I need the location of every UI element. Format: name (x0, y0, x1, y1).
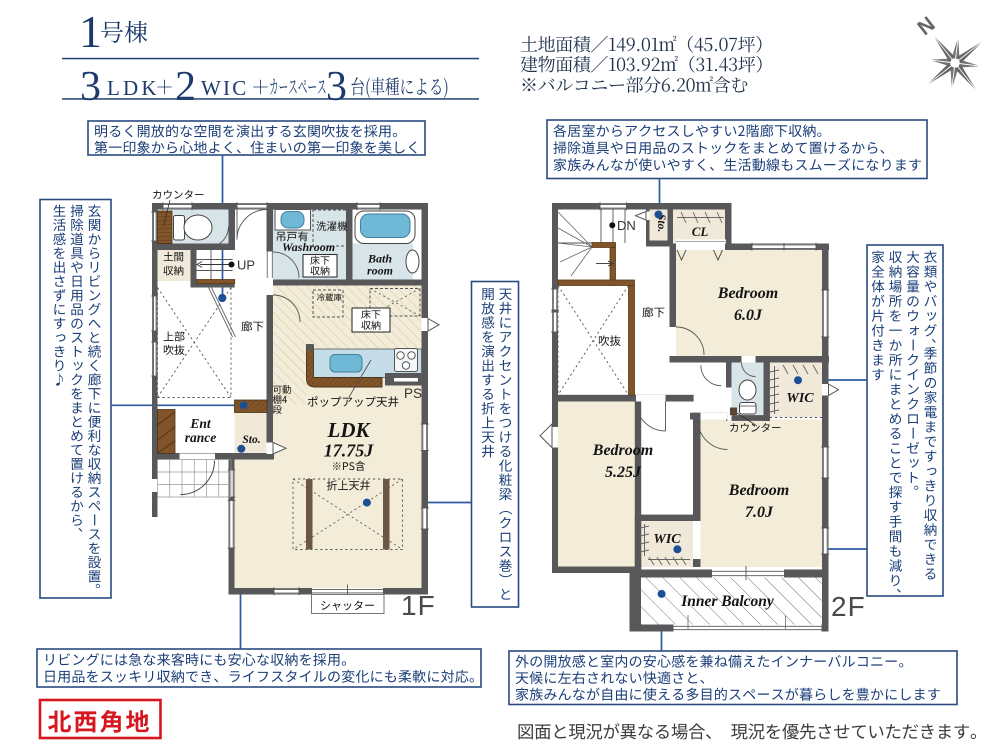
svg-text:LDK: LDK (107, 76, 160, 100)
svg-text:2F: 2F (831, 591, 866, 622)
svg-text:LDK: LDK (327, 418, 372, 442)
svg-text:5.25J: 5.25J (605, 464, 642, 481)
svg-text:6.0J: 6.0J (734, 307, 763, 324)
svg-text:2: 2 (175, 64, 196, 110)
svg-text:WIC: WIC (201, 76, 248, 100)
svg-text:DN: DN (617, 218, 636, 233)
svg-text:PS: PS (404, 386, 422, 401)
svg-text:Bedroom: Bedroom (717, 285, 778, 302)
svg-text:Bedroom: Bedroom (592, 442, 653, 459)
svg-text:1: 1 (79, 6, 102, 57)
svg-text:WIC: WIC (786, 391, 814, 406)
svg-text:WIC: WIC (653, 532, 681, 547)
svg-text:17.75J: 17.75J (324, 441, 375, 461)
svg-text:7.0J: 7.0J (745, 504, 774, 521)
svg-text:1F: 1F (401, 590, 436, 621)
svg-text:Sto.: Sto. (242, 434, 260, 446)
svg-text:Ent: Ent (189, 416, 212, 431)
svg-text:Bedroom: Bedroom (728, 482, 789, 499)
svg-text:UP: UP (237, 258, 255, 273)
svg-text:Inner Balcony: Inner Balcony (680, 593, 774, 610)
svg-text:rance: rance (185, 430, 217, 445)
svg-text:Washroom: Washroom (282, 240, 335, 254)
svg-text:room: room (367, 264, 393, 278)
svg-text:CL: CL (692, 224, 709, 239)
svg-text:3: 3 (80, 64, 101, 110)
svg-text:3: 3 (326, 64, 347, 110)
